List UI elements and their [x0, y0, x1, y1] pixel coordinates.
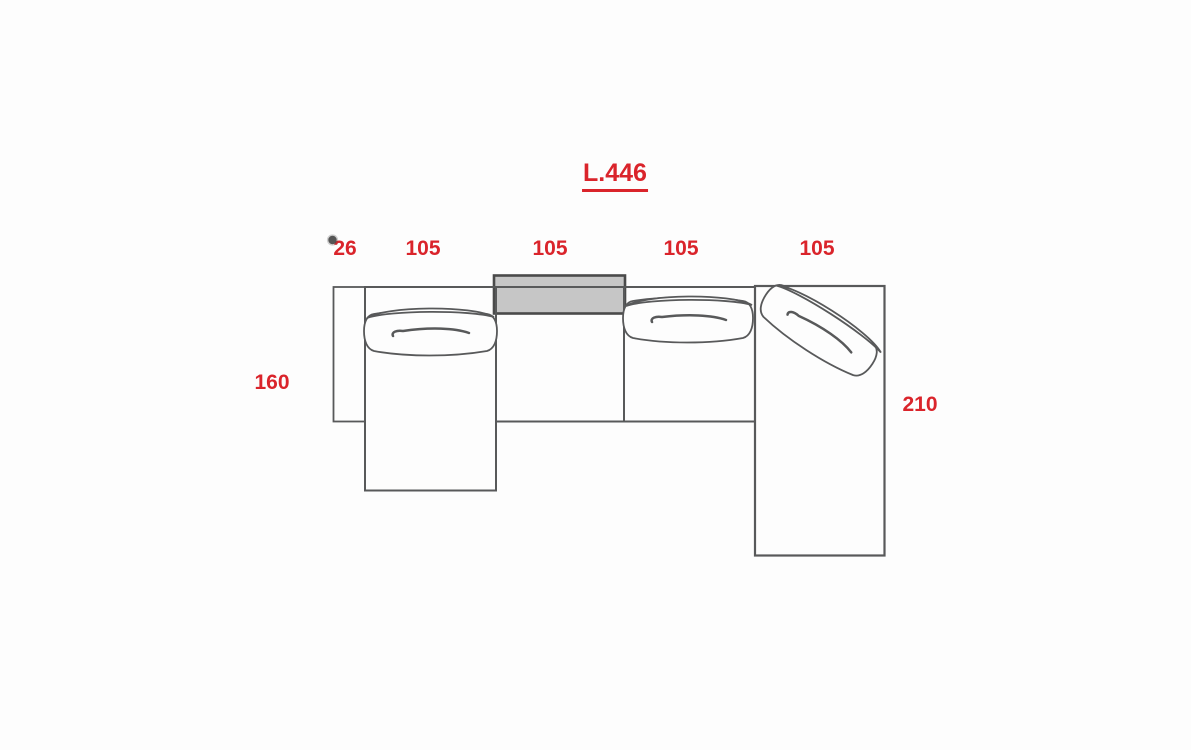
left-chaise-cushion — [364, 308, 497, 355]
sofa-outline-drawing — [0, 0, 1191, 750]
right-seat-cushion — [623, 296, 753, 342]
left-armrest — [334, 287, 366, 422]
sofa-dimension-diagram: L.446 26 105 105 105 105 160 210 — [0, 0, 1191, 750]
right-chaise-angled-cushion — [753, 276, 886, 385]
cushion-body — [623, 297, 753, 342]
cushion-body — [364, 310, 497, 355]
headrest-gray-panel — [494, 276, 625, 314]
marker-dot — [328, 236, 336, 244]
cushion-body — [753, 277, 884, 384]
